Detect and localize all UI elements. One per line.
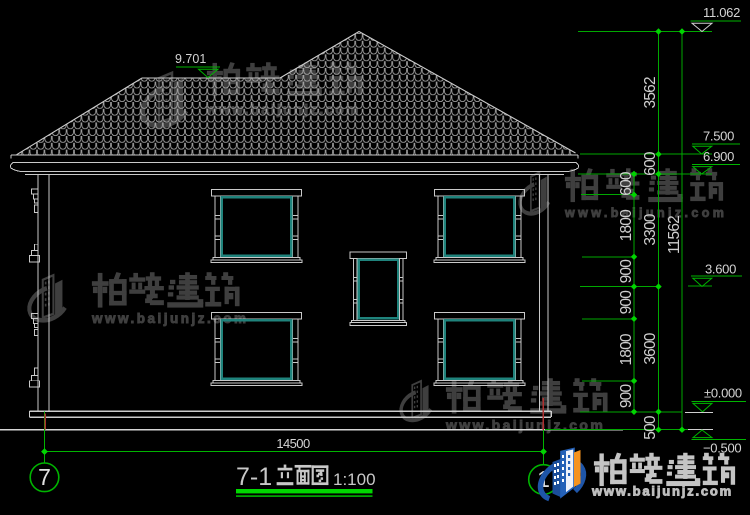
svg-text:3.600: 3.600: [705, 262, 736, 277]
svg-text:www.baijunjz.com: www.baijunjz.com: [445, 417, 605, 433]
svg-text:3600: 3600: [642, 332, 659, 364]
svg-text:3300: 3300: [642, 213, 659, 245]
svg-text:3562: 3562: [642, 77, 659, 108]
svg-text:6.900: 6.900: [703, 149, 734, 164]
svg-text:600: 600: [618, 171, 635, 196]
svg-text:11.062: 11.062: [703, 5, 740, 20]
svg-text:900: 900: [618, 383, 635, 408]
svg-text:11562: 11562: [666, 216, 683, 254]
svg-text:500: 500: [642, 415, 659, 440]
svg-text:900: 900: [618, 290, 635, 315]
svg-text:1:100: 1:100: [333, 470, 376, 489]
svg-text:7-1: 7-1: [236, 463, 272, 491]
svg-text:±0.000: ±0.000: [704, 386, 742, 401]
svg-text:14500: 14500: [276, 436, 310, 451]
svg-text:900: 900: [618, 259, 635, 284]
svg-text:7.500: 7.500: [703, 129, 734, 144]
svg-text:9.701: 9.701: [175, 52, 206, 66]
svg-text:7: 7: [38, 464, 51, 490]
svg-text:1800: 1800: [618, 209, 635, 241]
svg-text:600: 600: [642, 151, 659, 176]
svg-text:www.baijunjz.com: www.baijunjz.com: [591, 484, 733, 499]
svg-text:1800: 1800: [618, 333, 635, 365]
